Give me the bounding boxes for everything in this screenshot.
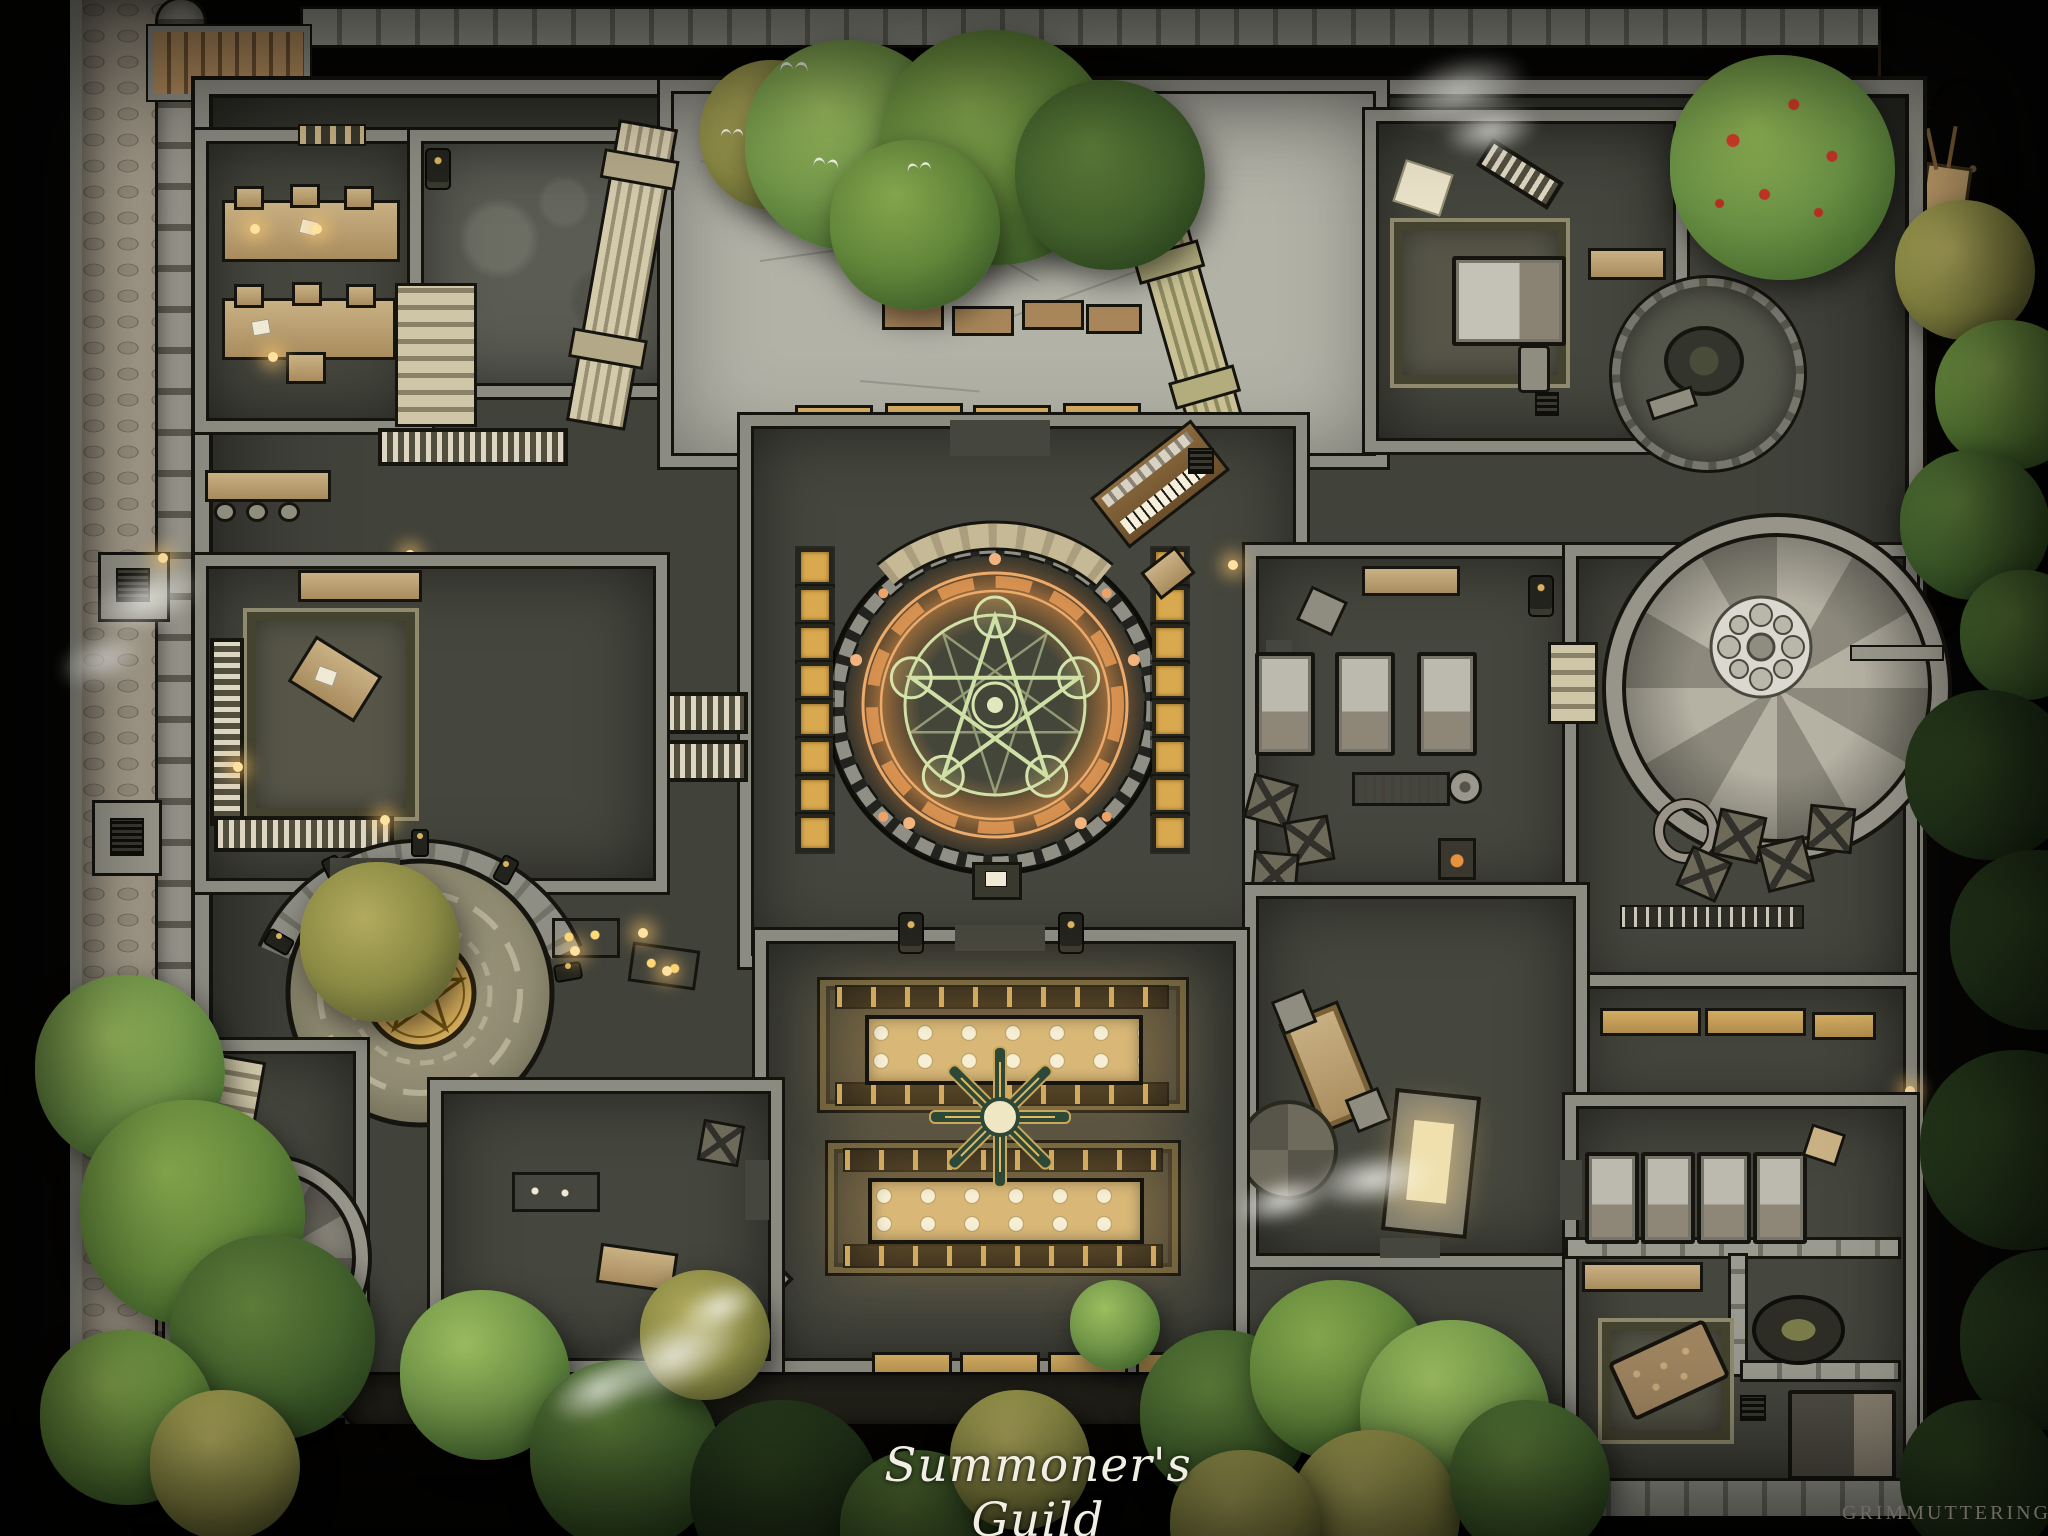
- office-bookshelf: [210, 638, 244, 826]
- ritual-chair: [1152, 814, 1188, 852]
- lantern-glow: [1228, 560, 1238, 570]
- work-bench: [1600, 1008, 1701, 1036]
- chair-row: [835, 985, 1169, 1009]
- bedroom-bed: [1585, 1152, 1639, 1244]
- bedroom-bed: [1641, 1152, 1695, 1244]
- bush: [1070, 1280, 1160, 1370]
- lantern-glow: [268, 352, 278, 362]
- ritual-chair: [1152, 738, 1188, 776]
- switchback-stairs: [395, 283, 477, 427]
- summoning-circle: [805, 515, 1185, 895]
- work-bench: [1812, 1012, 1876, 1040]
- dormitory-bed: [1417, 652, 1477, 756]
- side-table: [1588, 248, 1666, 280]
- dormitory-bed: [1255, 652, 1315, 756]
- column-capital: [1168, 364, 1241, 410]
- sleeping-bed: [1788, 1390, 1896, 1480]
- north-wall: [300, 6, 1881, 48]
- planter-box: [1022, 300, 1084, 330]
- armored-statue: [1528, 575, 1554, 617]
- dorm-desk: [1362, 566, 1460, 596]
- guard-statue: [898, 912, 924, 954]
- open-book: [985, 871, 1007, 887]
- banquet-doorway: [955, 925, 1045, 951]
- column-capital: [568, 327, 648, 370]
- workbench: [1352, 772, 1450, 806]
- tree: [300, 862, 460, 1022]
- stair-rosette: [1706, 592, 1816, 702]
- doorway: [1380, 1238, 1440, 1258]
- bedroom-bed: [1753, 1152, 1807, 1244]
- map-title: Summoner's Guild: [838, 1438, 1238, 1536]
- inner-wall: [1740, 1360, 1901, 1382]
- apple-tree: [1670, 55, 1895, 280]
- tree: [1015, 80, 1205, 270]
- chair-row: [843, 1244, 1163, 1268]
- stool: [246, 502, 268, 522]
- ritual-chair: [797, 548, 833, 586]
- weapon-rack: [1620, 905, 1804, 929]
- stair-approach: [1548, 642, 1598, 724]
- ritual-chair: [797, 624, 833, 662]
- lectern: [290, 184, 320, 208]
- doorway: [745, 1160, 769, 1220]
- ritual-chair: [797, 700, 833, 738]
- hall-doorway: [950, 420, 1050, 456]
- ritual-chair: [797, 662, 833, 700]
- tree: [150, 1390, 300, 1536]
- floor-grate: [1740, 1395, 1766, 1421]
- armored-statue: [425, 148, 451, 190]
- stone-pillar: [1518, 345, 1550, 393]
- dormitory-bed: [1335, 652, 1395, 756]
- battle-map: Summoner's Guild GRIMMUTTERINGS: [0, 0, 2048, 1536]
- lectern: [346, 284, 376, 308]
- wall-ladder: [298, 124, 366, 146]
- guard-statue: [1058, 912, 1084, 954]
- ritual-lectern: [972, 862, 1022, 900]
- lantern-glow: [250, 224, 260, 234]
- star-centerpiece: [925, 1042, 1075, 1192]
- ritual-chair: [1152, 700, 1188, 738]
- ritual-chair: [797, 776, 833, 814]
- cauldron: [1752, 1295, 1845, 1365]
- lectern: [234, 284, 264, 308]
- bedroom-bed: [1697, 1152, 1751, 1244]
- gold-glow: [638, 928, 648, 938]
- bird: [721, 129, 743, 137]
- office-side-table: [298, 570, 422, 602]
- ritual-chair: [797, 586, 833, 624]
- bedroom-bed: [1452, 256, 1566, 346]
- lantern-glow: [233, 762, 243, 772]
- lectern: [344, 186, 374, 210]
- stair-railing: [1850, 645, 1944, 661]
- ritual-chair: [1152, 624, 1188, 662]
- gold-glow: [570, 946, 580, 956]
- treasure-table: [552, 918, 620, 958]
- floor-grate: [1535, 392, 1559, 416]
- lantern-glow: [158, 553, 168, 563]
- lectern: [234, 186, 264, 210]
- ritual-chair: [797, 814, 833, 852]
- stool: [278, 502, 300, 522]
- lantern-glow: [312, 224, 322, 234]
- column-capital: [600, 148, 680, 191]
- ritual-chair: [797, 738, 833, 776]
- corridor-table: [205, 470, 331, 502]
- corridor-shelf: [378, 428, 568, 466]
- doorway: [1560, 1160, 1582, 1220]
- work-bench: [1705, 1008, 1806, 1036]
- furnace: [1438, 838, 1476, 880]
- planter-box: [1086, 304, 1142, 334]
- lectern: [292, 282, 322, 306]
- writing-desk: [1582, 1262, 1703, 1292]
- west-gate-grate-2: [110, 818, 144, 856]
- storage-table: [512, 1172, 600, 1212]
- grindstone: [1448, 770, 1482, 804]
- crate: [697, 1119, 746, 1168]
- gold-glow: [662, 966, 672, 976]
- bird: [907, 162, 932, 173]
- ritual-chair: [1152, 662, 1188, 700]
- ritual-chair: [1152, 776, 1188, 814]
- office-rug: [243, 608, 419, 821]
- reading-podium: [286, 352, 326, 384]
- crate: [1806, 804, 1857, 855]
- planter-box: [952, 306, 1014, 336]
- bird: [780, 62, 808, 72]
- tree: [1895, 200, 2035, 340]
- floor-grate: [1188, 448, 1214, 474]
- artist-watermark: GRIMMUTTERINGS: [1842, 1502, 2048, 1525]
- loose-papers: [251, 319, 271, 337]
- round-table: [1664, 326, 1744, 396]
- stool: [214, 502, 236, 522]
